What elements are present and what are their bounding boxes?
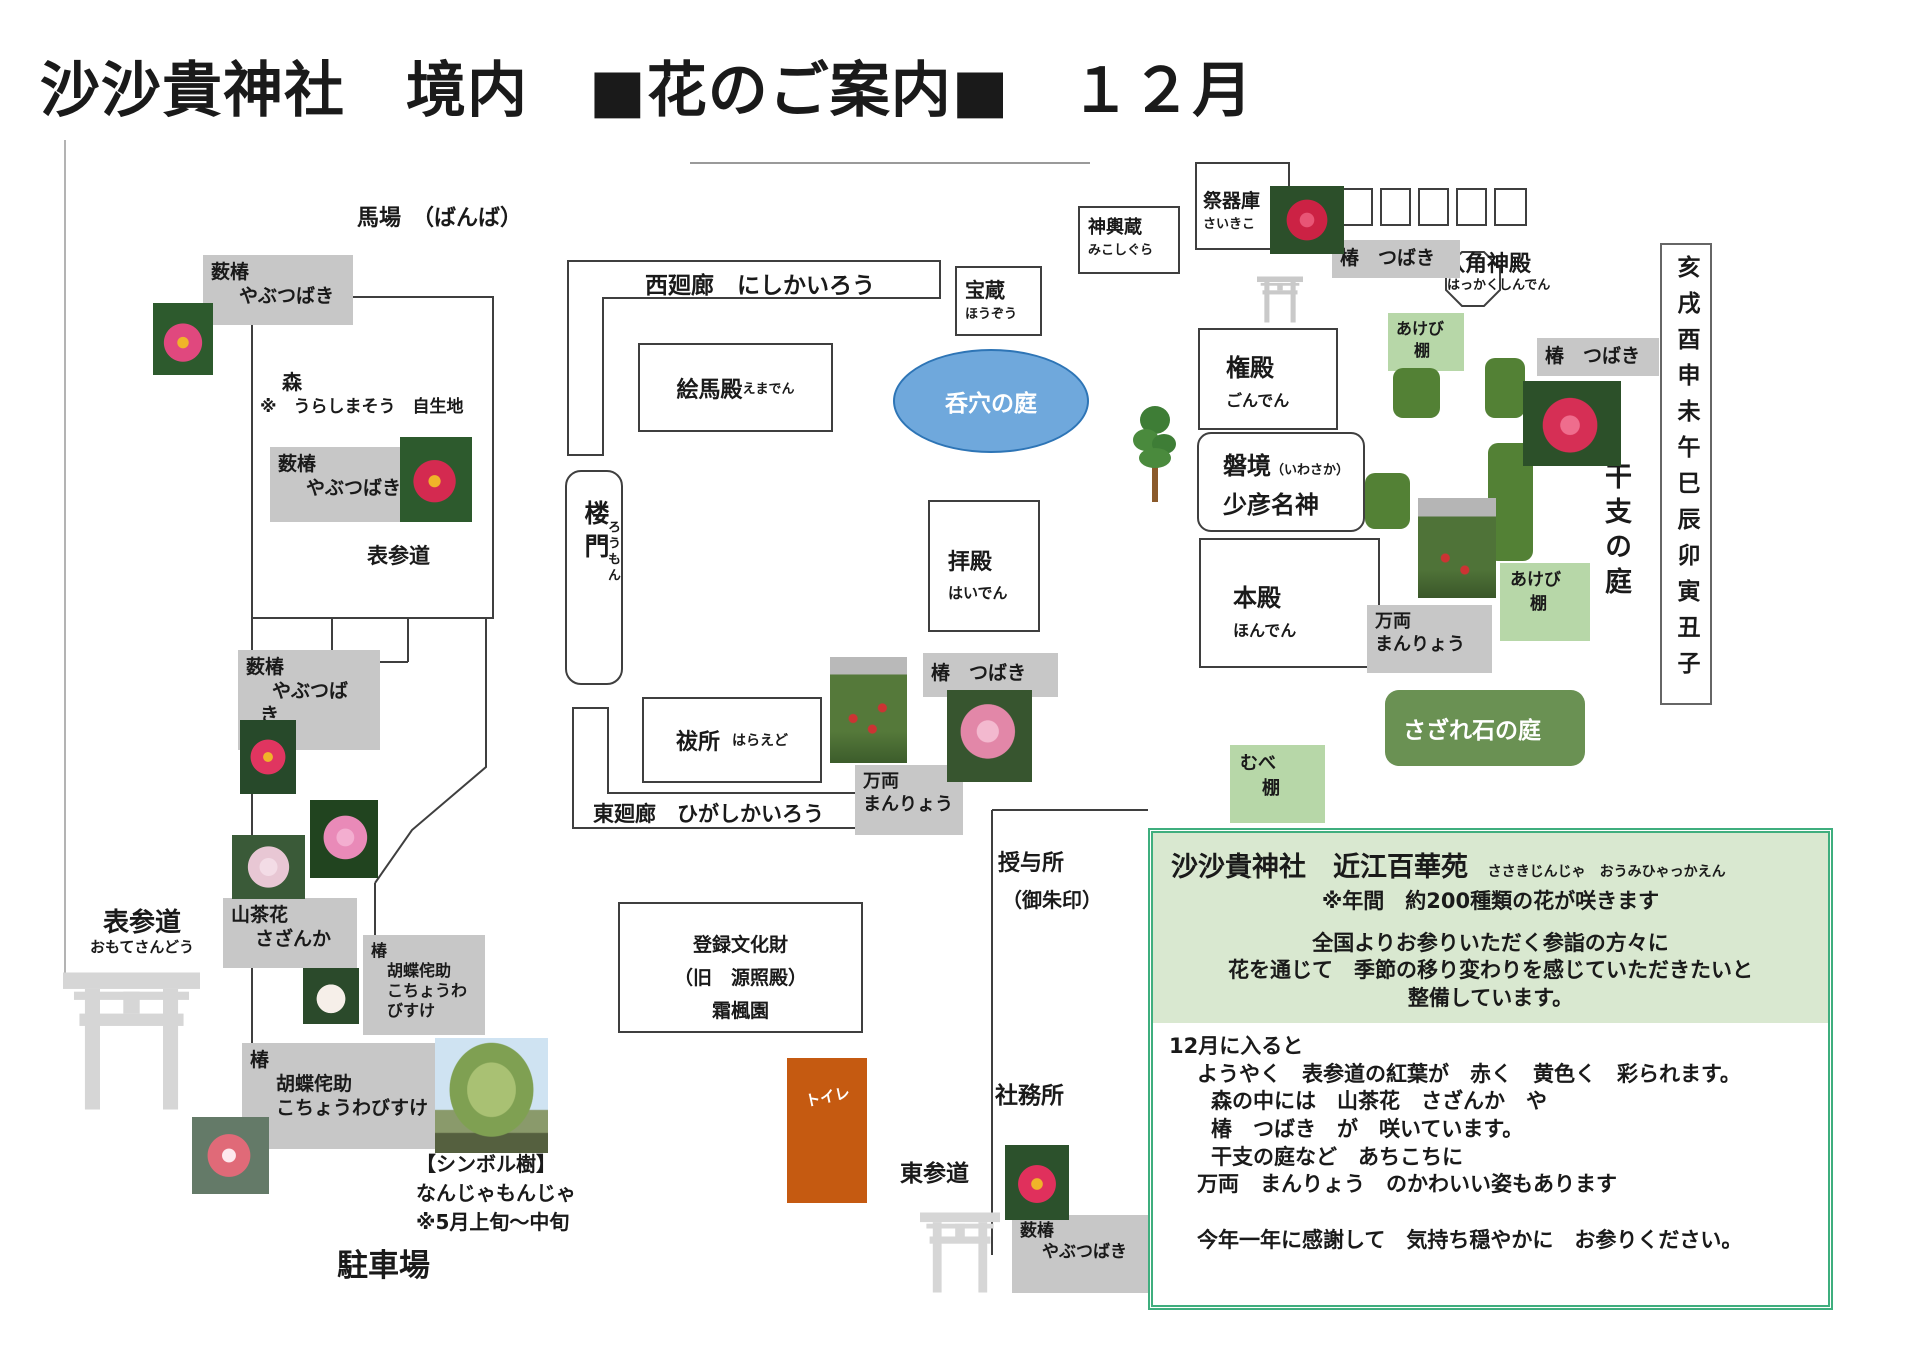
iwasaka-deity: 少彦名神: [1223, 485, 1363, 520]
small-square: [1380, 188, 1411, 226]
info-title: 沙沙貴神社 近江百華苑: [1171, 852, 1468, 883]
label-tsubaki-top: 椿 つばき: [1332, 240, 1460, 278]
building-hakkaku-furi: はっかくしんでん: [1447, 274, 1550, 293]
romon-furi: ろうもん: [603, 520, 622, 584]
label-manryo-right: 万両 まんりょう: [1367, 605, 1492, 673]
area-omotesando-left-furi: おもてさんどう: [90, 936, 194, 957]
zodiac-characters: 亥戌酉申未午巳辰卯寅丑子: [1669, 245, 1703, 703]
small-square: [1418, 188, 1449, 226]
iwasaka-furi: （いわさか）: [1271, 463, 1349, 478]
label-sazanka: 山茶花 さざんか: [223, 898, 357, 968]
camellia-photo: [1005, 1145, 1069, 1220]
manryo-photo: [830, 657, 907, 763]
info-paragraph: 全国よりお参りいただく参詣の方々に: [1171, 930, 1810, 958]
camellia-photo: [400, 437, 472, 522]
camellia-photo: [1523, 381, 1621, 466]
wabisuke-photo: [192, 1117, 269, 1194]
info-paragraph: 整備しています。: [1171, 985, 1810, 1013]
west-corridor-label: 西廻廊 にしかいろう: [645, 266, 875, 300]
building-iwasaka: 磐境（いわさか） 少彦名神: [1197, 432, 1365, 532]
small-square: [1494, 188, 1527, 226]
label-yabutsubaki-1: 薮椿 やぶつばき: [203, 255, 353, 325]
haraedo-name: 祓所: [676, 724, 720, 756]
garden-shrub: [1393, 368, 1440, 418]
camellia-photo: [1270, 186, 1344, 254]
sazare-stone-garden: さざれ石の庭: [1385, 690, 1585, 766]
info-paragraph: 花を通じて 季節の移り変わりを感じていただきたいと: [1171, 957, 1810, 985]
label-akebi-2: あけび 棚: [1500, 563, 1590, 641]
label-mube: むべ 棚: [1230, 745, 1325, 823]
building-bunkazai: 登録文化財 （旧 源照殿） 霜楓園: [618, 902, 863, 1033]
donketsu-garden-oval: 呑穴の庭: [893, 349, 1089, 453]
forest-label: 森: [282, 366, 302, 395]
garden-shrub: [1485, 358, 1525, 418]
building-mikoshigura: 神輿蔵 みこしぐら: [1078, 206, 1180, 274]
torii-icon-west: [63, 972, 200, 1110]
emaden-name: 絵馬殿: [676, 372, 742, 404]
info-title-furi: ささきじんじゃ おうみひゃっかえん: [1488, 864, 1726, 880]
area-omotesando-mid: 表参道: [367, 540, 430, 570]
label-kochowabisuke-1: 椿 胡蝶侘助 こちょうわびすけ: [363, 935, 485, 1035]
emaden-furi: えまでん: [743, 378, 795, 397]
toilet-label: トイレ: [803, 1082, 851, 1112]
pine-tree-icon: [1128, 398, 1182, 506]
area-banba: 馬場 （ばんば）: [357, 200, 522, 232]
manryo-photo: [1418, 498, 1496, 598]
torii-icon-north: [1257, 272, 1303, 327]
shrine-map-page: 沙沙貴神社 境内 ■花のご案内■ １２月 馬場 （ばんば） 西廻廊 にしかいろう…: [0, 0, 1920, 1357]
symbol-tree-photo: [435, 1038, 548, 1153]
info-subtitle: ※年間 約200種類の花が咲きます: [1171, 888, 1810, 916]
zodiac-column: 亥戌酉申未午巳辰卯寅丑子: [1660, 243, 1712, 705]
building-gonden: 権殿 ごんでん: [1198, 328, 1338, 430]
info-box-header: 沙沙貴神社 近江百華苑 ささきじんじゃ おうみひゃっかえん ※年間 約200種類…: [1153, 833, 1828, 1023]
area-parking: 駐車場: [337, 1240, 430, 1285]
toilet-block: トイレ: [787, 1058, 867, 1203]
forest-note: ※ うらしまそう 自生地: [260, 392, 464, 417]
building-emaden: 絵馬殿えまでん: [638, 343, 833, 432]
label-kochowabisuke-2: 椿 胡蝶侘助 こちょうわびすけ: [242, 1043, 438, 1149]
camellia-photo: [240, 720, 296, 794]
area-shamusho: 社務所: [995, 1076, 1064, 1110]
area-omotesando-left: 表参道: [103, 902, 181, 939]
camellia-photo: [153, 303, 213, 375]
white-flower-photo: [303, 968, 359, 1024]
garden-shrub: [1365, 473, 1410, 529]
label-akebi-1: あけび 棚: [1388, 313, 1464, 371]
area-higashisando: 東参道: [900, 1154, 969, 1188]
small-square: [1342, 188, 1373, 226]
iwasaka-name: 磐境: [1223, 452, 1271, 480]
camellia-photo: [947, 690, 1032, 782]
symbol-tree-note: 【シンボル樹】 なんじゃもんじゃ ※5月上旬～中旬: [416, 1150, 576, 1237]
info-box: 沙沙貴神社 近江百華苑 ささきじんじゃ おうみひゃっかえん ※年間 約200種類…: [1148, 828, 1833, 1310]
area-juyosho-goshuin: （御朱印）: [1002, 884, 1102, 913]
building-honden: 本殿 ほんでん: [1199, 538, 1380, 668]
label-yabutsubaki-4: 薮椿 やぶつばき: [1012, 1215, 1150, 1293]
info-box-body: 12月に入ると ようやく 表参道の紅葉が 赤く 黄色く 彩られます。 森の中には…: [1153, 1023, 1828, 1265]
area-juyosho: 授与所: [998, 845, 1064, 877]
torii-icon-east: [920, 1190, 1000, 1315]
haraedo-furi: はらえど: [732, 730, 788, 750]
camellia-photo: [310, 800, 378, 878]
building-hozo: 宝蔵 ほうぞう: [955, 266, 1042, 336]
eto-garden-label: 干支の庭: [1596, 462, 1635, 602]
sazanka-photo: [232, 835, 305, 899]
building-haiden: 拝殿 はいでん: [928, 500, 1040, 632]
building-romon: 楼門 ろうもん: [565, 470, 623, 685]
small-square: [1456, 188, 1487, 226]
building-haraedo: 祓所はらえど: [642, 697, 822, 783]
label-tsubaki-right: 椿 つばき: [1537, 338, 1659, 376]
east-corridor-label: 東廻廊 ひがしかいろう: [593, 798, 824, 828]
